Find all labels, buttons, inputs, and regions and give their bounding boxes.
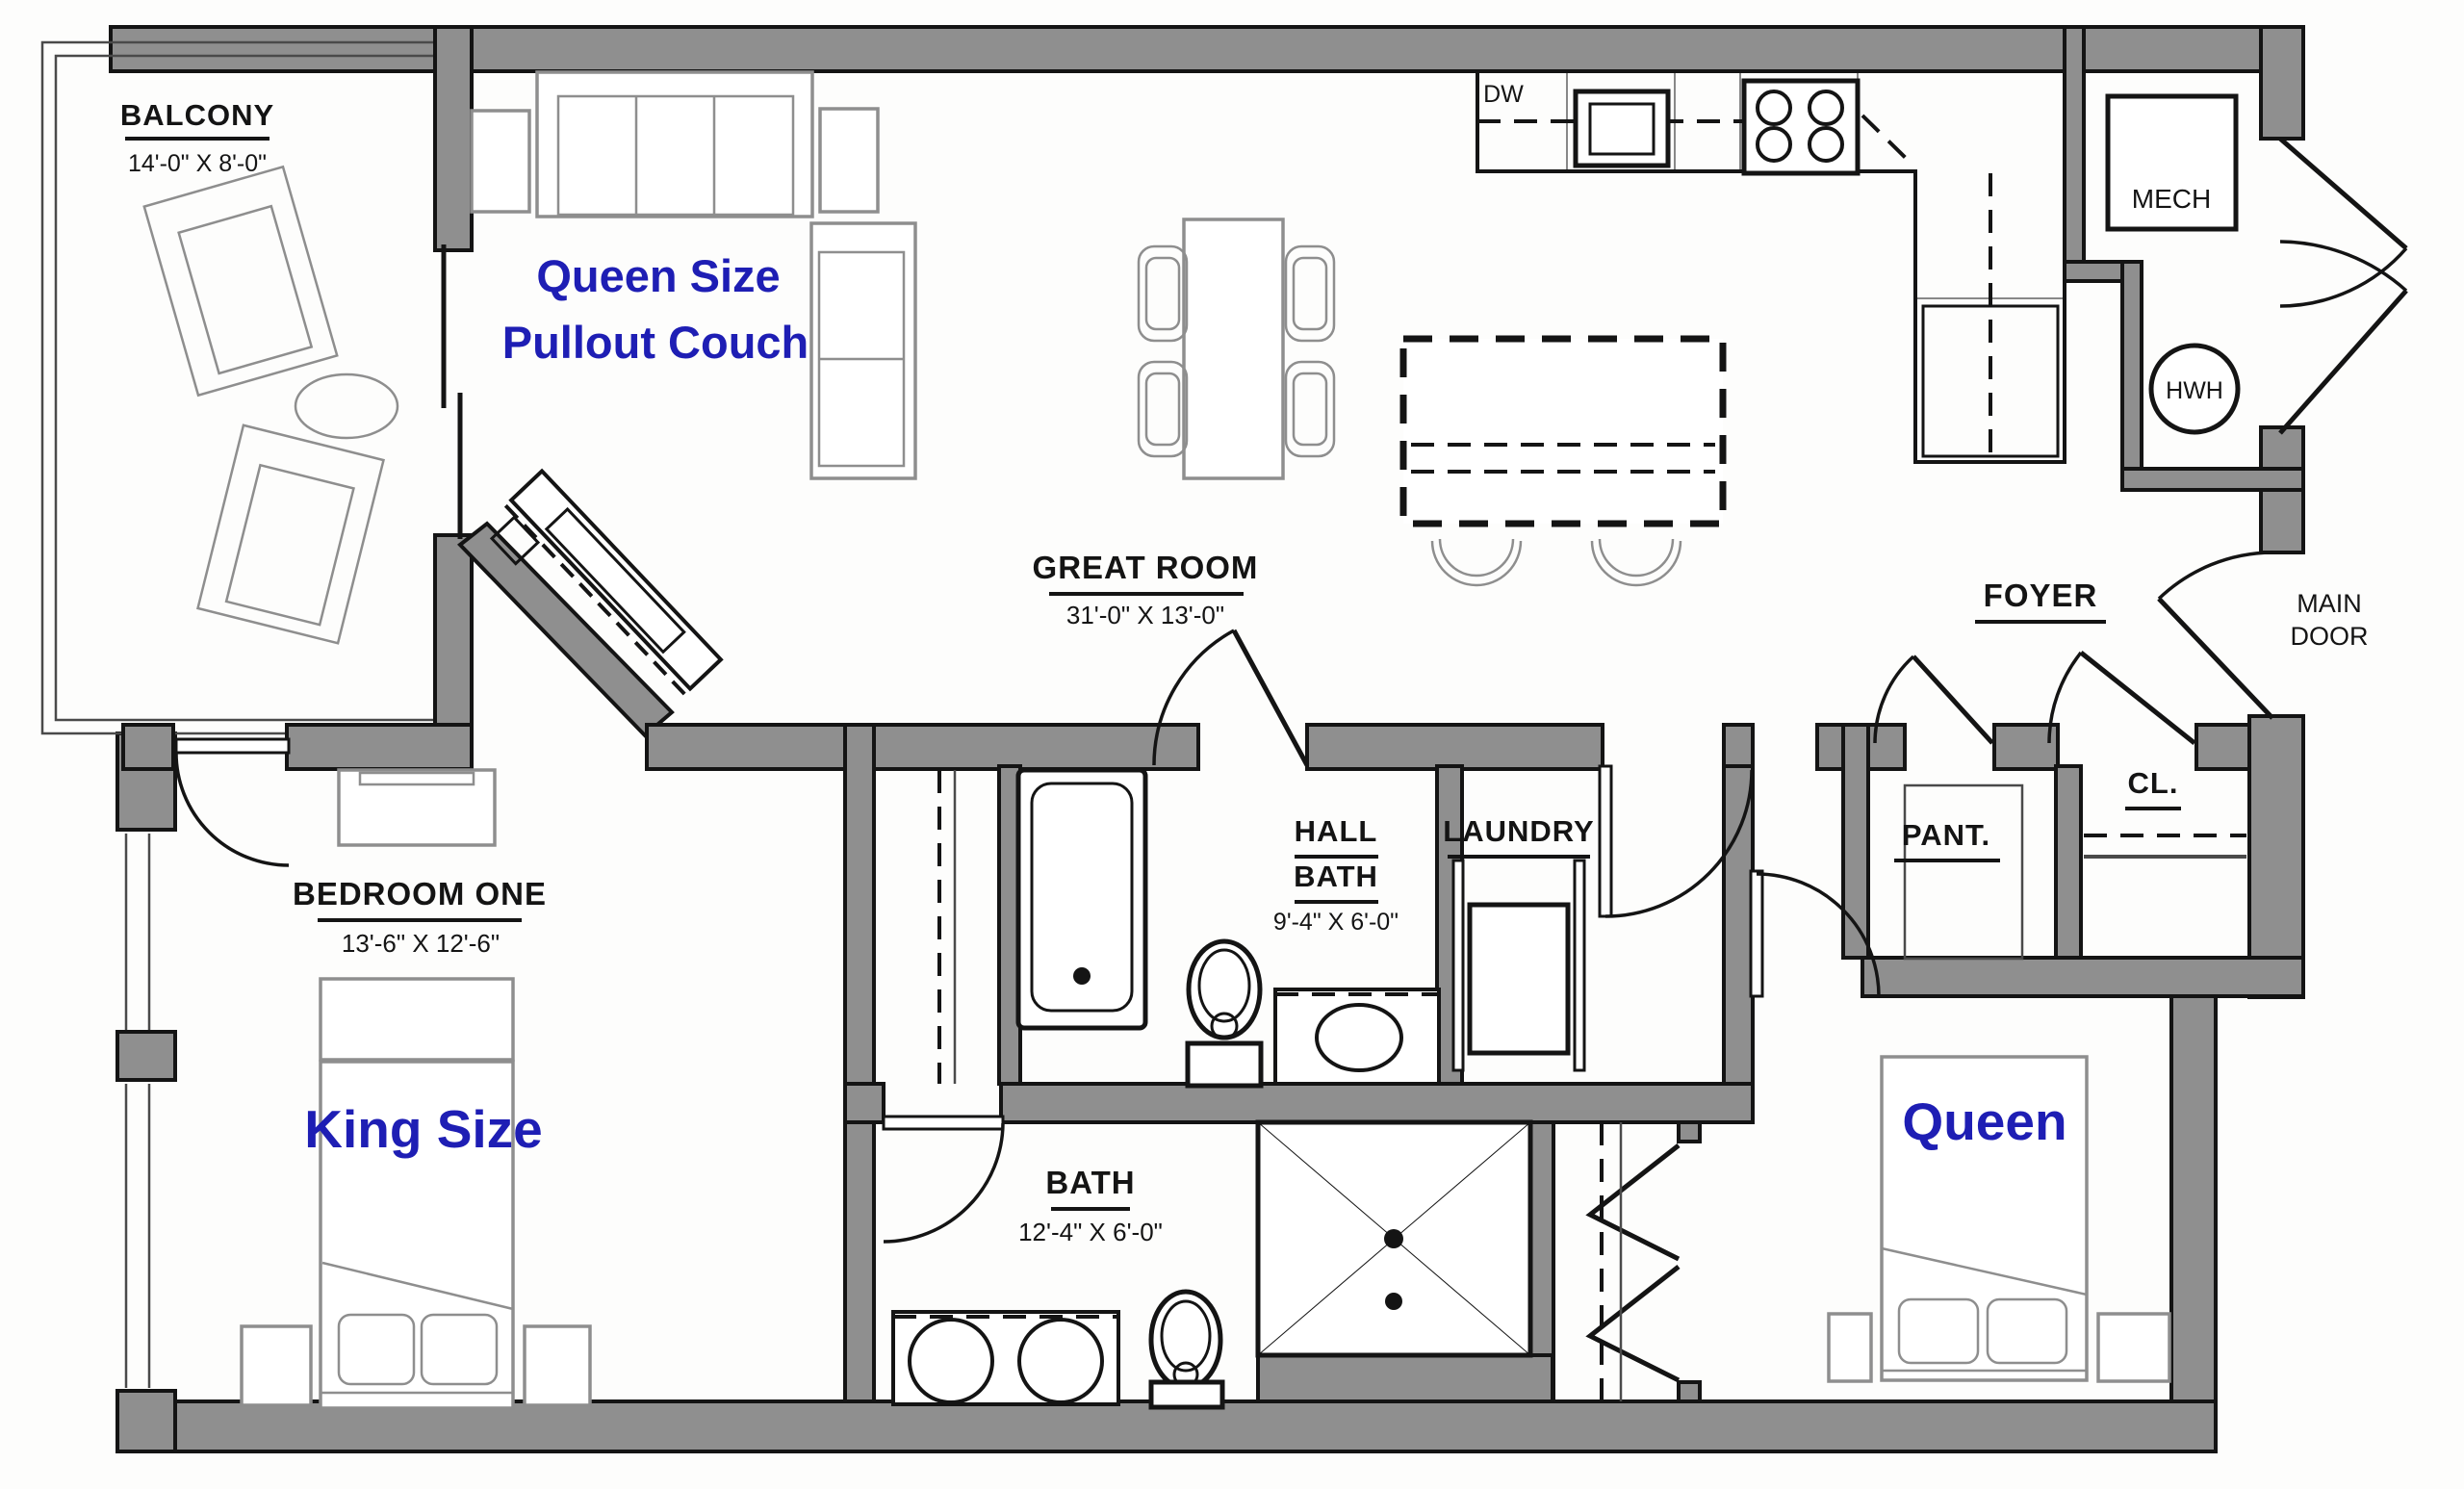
stove <box>1744 81 1858 173</box>
hall-bath-label-line1: HALL <box>1295 814 1378 848</box>
great-room-dims: 31'-0" X 13'-0" <box>1066 601 1224 629</box>
balcony-chair-top <box>144 167 337 395</box>
floor-plan-canvas: MECH HWH <box>0 0 2464 1489</box>
hall-bath-toilet <box>1188 941 1261 1086</box>
balcony-table <box>295 374 398 438</box>
bath-dims: 12'-4" X 6'-0" <box>1018 1218 1163 1246</box>
hall-bath-vanity <box>1275 989 1439 1084</box>
bar-stools <box>1432 539 1681 585</box>
main-door-label-line1: MAIN <box>2297 589 2362 618</box>
couch-label-line1: Queen Size <box>536 250 780 301</box>
bedroom-one-label: BEDROOM ONE <box>293 876 547 911</box>
couch-label-line2: Pullout Couch <box>502 317 809 368</box>
balcony-chair-bottom <box>198 425 384 643</box>
bath-label: BATH <box>1045 1165 1135 1200</box>
laundry-label: LAUNDRY <box>1443 814 1594 848</box>
bath-vanity <box>893 1312 1118 1404</box>
floor-plan: MECH HWH <box>0 0 2464 1489</box>
balcony-dims: 14'-0" X 8'-0" <box>128 150 267 177</box>
bath-toilet <box>1151 1292 1222 1407</box>
hwh-label: HWH <box>2166 377 2223 404</box>
hall-bath-label-line2: BATH <box>1294 860 1378 893</box>
shower <box>1258 1122 1530 1355</box>
coat-closet-door <box>2049 653 2194 743</box>
pantry-label: PANT. <box>1902 818 1990 852</box>
sofa <box>537 72 812 217</box>
dining-set <box>1139 219 1334 478</box>
bathtub <box>1018 770 1145 1028</box>
side-table-right <box>820 109 878 212</box>
foyer-label: FOYER <box>1984 578 2098 613</box>
side-table-left <box>472 111 529 212</box>
dishwasher-label: DW <box>1483 81 1524 108</box>
chaise <box>811 223 915 478</box>
bedroom-two-closet-bifold <box>1590 1122 1679 1401</box>
bedroom-one-dims: 13'-6" X 12'-6" <box>342 929 500 958</box>
washer-dryer <box>1453 860 1584 1070</box>
mech-double-doors <box>2280 139 2406 433</box>
nightstand <box>525 1326 590 1405</box>
main-door-label-line2: DOOR <box>2291 622 2369 651</box>
main-entry-door <box>2159 552 2272 718</box>
bedroom-one-door <box>176 739 289 865</box>
queen-bed-label: Queen <box>1902 1091 2066 1151</box>
balcony-sliding-door <box>435 27 472 733</box>
mech-label: MECH <box>2132 184 2211 214</box>
nightstand <box>2098 1314 2169 1381</box>
balcony-railing <box>42 42 452 733</box>
bath-door <box>884 1117 1003 1242</box>
kitchen-island <box>1403 339 1723 524</box>
king-bed <box>321 979 513 1408</box>
hall-bath-dims: 9'-4" X 6'-0" <box>1273 909 1399 936</box>
nightstand <box>242 1326 311 1405</box>
great-room-label: GREAT ROOM <box>1033 550 1259 585</box>
nightstand <box>1829 1314 1871 1381</box>
kitchen-sink <box>1576 91 1668 166</box>
balcony-label: BALCONY <box>120 98 274 132</box>
closet-label: CL. <box>2128 766 2179 800</box>
dresser <box>339 770 495 845</box>
mech-unit: MECH <box>2108 96 2236 229</box>
west-windows <box>126 834 149 1388</box>
bedroom-one-closet <box>939 770 955 1084</box>
king-bed-label: King Size <box>304 1099 543 1159</box>
water-heater: HWH <box>2151 346 2238 432</box>
